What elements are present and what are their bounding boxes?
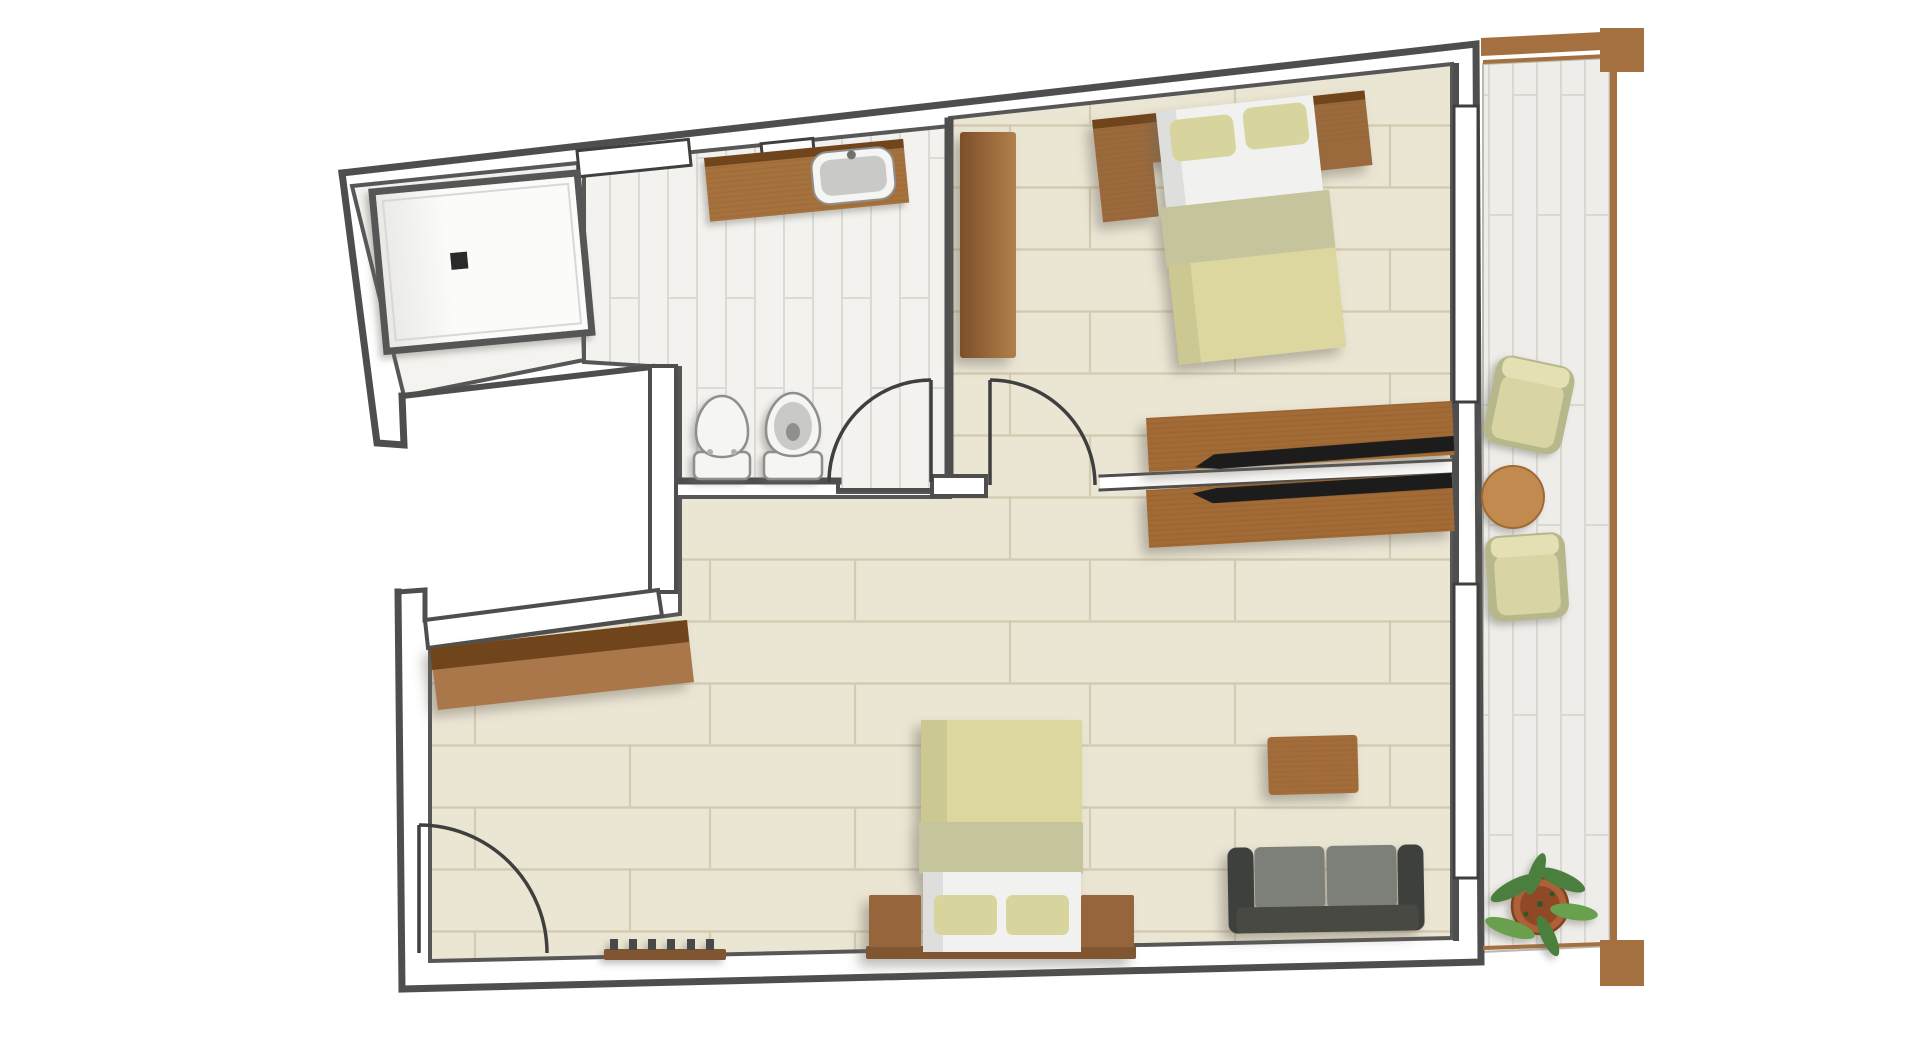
sofa-back <box>1236 904 1418 933</box>
floor-plan-canvas <box>0 0 1920 1047</box>
balcony-armchair-lower <box>1484 531 1570 622</box>
wardrobe <box>960 132 1016 358</box>
door-stub-wall <box>932 476 986 496</box>
sofa-bed-pillow <box>934 895 997 935</box>
window-right-wall-lower <box>1454 584 1478 878</box>
sofa-bed-pillow <box>1006 895 1069 935</box>
balcony-right-rail <box>1610 52 1617 948</box>
bed-pillow <box>1242 102 1310 151</box>
window-right-wall-upper <box>1454 106 1478 402</box>
toilet <box>694 396 750 479</box>
balcony-post-top <box>1600 28 1644 72</box>
nightstand <box>869 895 921 947</box>
sofa-cushion <box>1326 845 1397 908</box>
nightstand <box>1081 895 1134 947</box>
bidet <box>764 393 822 479</box>
balcony-top-rail <box>1481 32 1602 56</box>
floor-plan-drawing <box>0 0 1920 1047</box>
balcony-round-table <box>1482 466 1544 528</box>
coffee-table <box>1267 735 1358 795</box>
sofa-cushion <box>1254 846 1325 909</box>
sofa-bed-fold <box>919 822 1083 874</box>
balcony-post-bottom <box>1600 940 1644 986</box>
bed-pillow <box>1169 114 1237 163</box>
lower-left-wall-cap <box>398 590 425 620</box>
shower-drain <box>450 251 468 269</box>
void-right-wall <box>650 366 676 592</box>
double-bed <box>1150 94 1346 365</box>
walk-in-shower <box>372 173 592 351</box>
